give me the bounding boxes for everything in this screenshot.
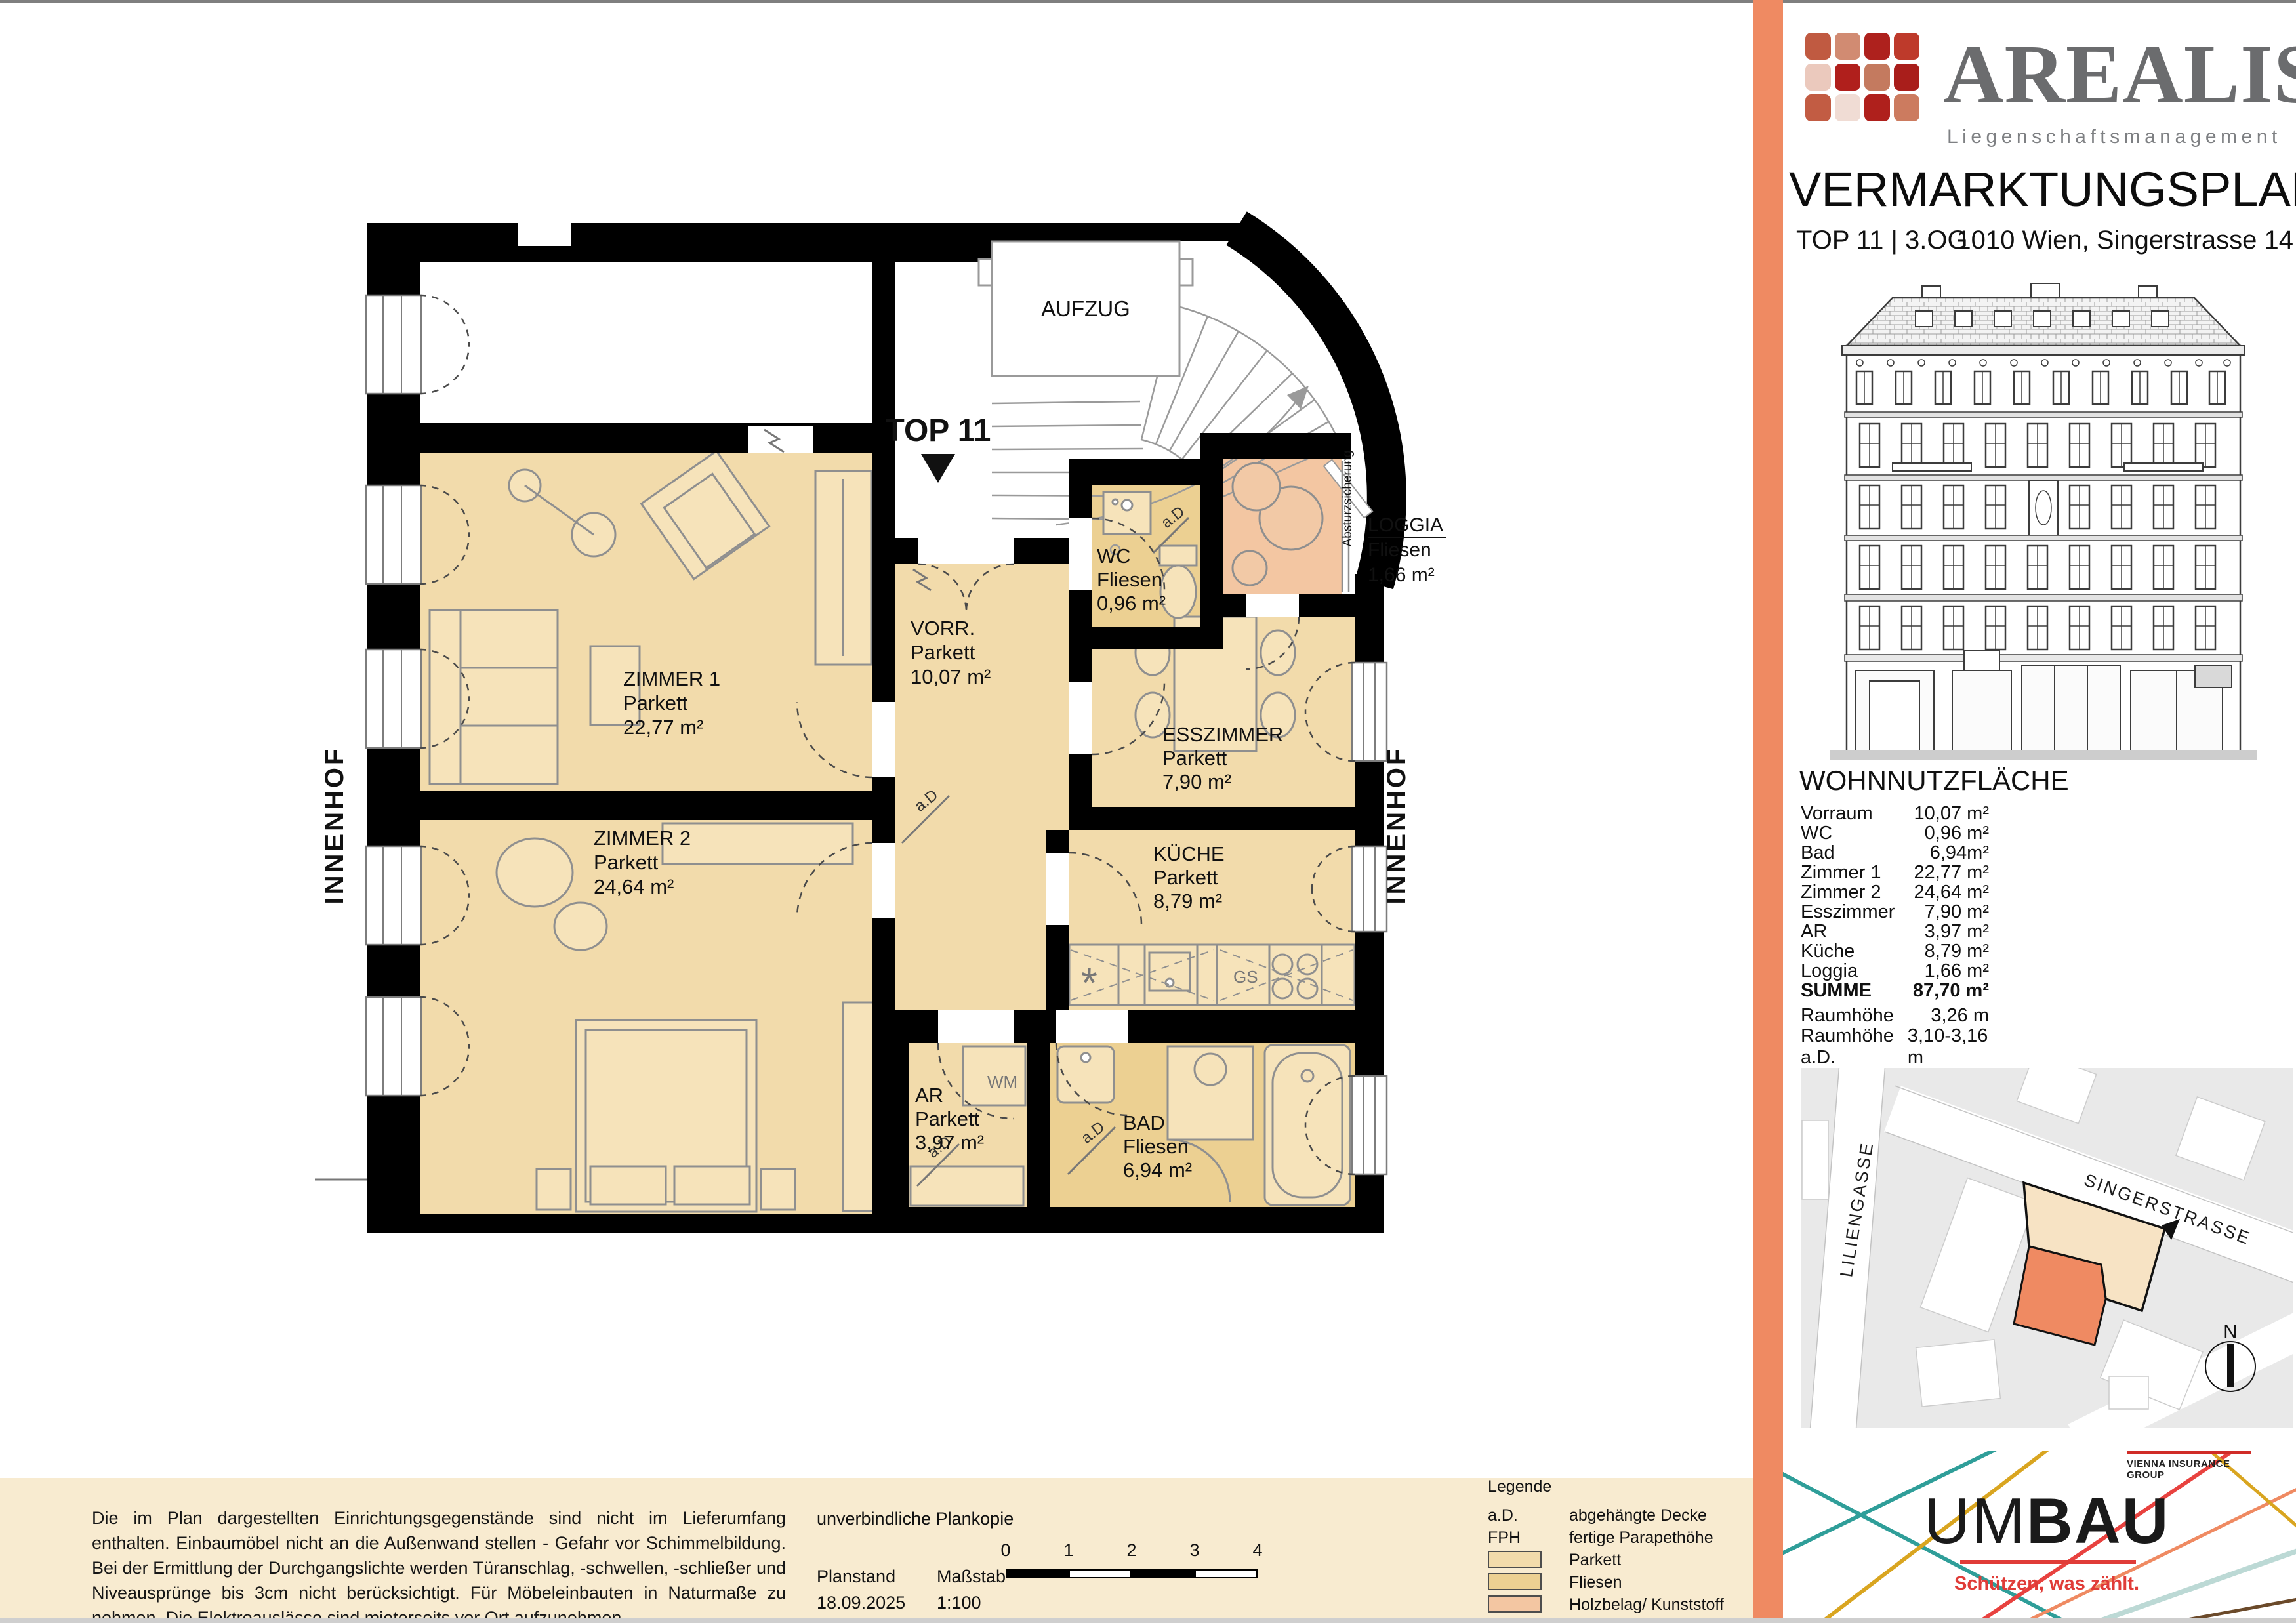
kitchen-counter	[1069, 945, 1355, 1005]
floor3-windows	[1860, 480, 2215, 535]
table-row: Loggia1,66 m²	[1801, 960, 1989, 980]
zimmer1-area: 22,77 m²	[623, 716, 703, 739]
logo-square	[1864, 33, 1890, 60]
table-row: Vorraum10,07 m²	[1801, 803, 1989, 823]
ar-area: 3,97 m²	[915, 1131, 984, 1154]
area-table-title: WOHNNUTZFLÄCHE	[1799, 765, 2069, 796]
ar-floor: Parkett	[915, 1107, 980, 1130]
toilet-tank	[1160, 546, 1197, 565]
brand-name: AREALIS	[1943, 26, 2294, 123]
plankopie-note: unverbindliche Plankopie	[817, 1509, 1014, 1529]
umbau-bau: BAU	[2026, 1485, 2169, 1557]
esszimmer-name: ESSZIMMER	[1162, 723, 1283, 746]
bad-name: BAD	[1123, 1111, 1165, 1134]
elevator: AUFZUG	[979, 241, 1193, 376]
table-row: Raumhöhe3,26 m	[1801, 1005, 1989, 1025]
top11-marker: TOP 11	[885, 413, 991, 483]
absturzsicherung-label: Absturzsicherung	[1341, 451, 1355, 547]
document-title: VERMARKTUNGSPLAN	[1789, 161, 2294, 217]
top11-label: TOP 11	[885, 413, 991, 448]
table-row: Küche8,79 m²	[1801, 941, 1989, 960]
entrance-arrow-icon	[921, 454, 955, 483]
floor1-windows	[1860, 606, 2215, 649]
loggia-name: LOGGIA	[1368, 514, 1443, 536]
scale-segment	[1006, 1569, 1069, 1578]
armchair-zimmer2	[497, 838, 573, 907]
innenhof-left-label: INNENHOF	[320, 747, 349, 905]
logo-square	[1894, 94, 1919, 121]
logo-square	[1835, 94, 1860, 121]
wc-area: 0,96 m²	[1097, 592, 1166, 615]
legend-swatch-parkett	[1488, 1551, 1542, 1568]
fridge-symbol: *	[1081, 959, 1097, 1006]
legend-title: Legende	[1488, 1477, 1551, 1496]
legend-label: Fliesen	[1569, 1573, 1622, 1592]
table-row: Raumhöhe a.D.3,10-3,16 m	[1801, 1025, 1989, 1046]
floor4-windows	[1860, 424, 2215, 471]
ground-line	[1830, 750, 2257, 760]
esszimmer-area: 7,90 m²	[1162, 770, 1231, 793]
zimmer1-floor: Parkett	[623, 691, 688, 714]
floor-plan: a.D a.D a.D a.D WM GS * AUFZUG ZIMMER 1 …	[0, 0, 1753, 1483]
vienna-insurance-group-logo: VIENNA INSURANCE GROUP	[2127, 1451, 2265, 1481]
logo-square	[1894, 33, 1919, 60]
address-label: 1010 Wien, Singerstrasse 14	[1929, 226, 2293, 255]
logo-square	[1835, 33, 1860, 60]
logo-square	[1835, 64, 1860, 91]
balcony	[2124, 463, 2203, 471]
floor2-windows	[1860, 546, 2215, 589]
scale-tick: 4	[1244, 1540, 1271, 1561]
loggia-chair	[1233, 463, 1280, 510]
sofa	[430, 610, 558, 784]
wm-label: WM	[987, 1072, 1017, 1092]
scale-tick: 3	[1181, 1540, 1208, 1561]
zimmer2-floor: Parkett	[594, 851, 659, 874]
logo-square	[1805, 94, 1831, 121]
kueche-name: KÜCHE	[1153, 842, 1225, 865]
legend-label: fertige Parapethöhe	[1569, 1529, 1713, 1548]
planstand-value: 18.09.2025	[817, 1593, 905, 1613]
logo-square	[1864, 64, 1890, 91]
planstand-label: Planstand	[817, 1567, 895, 1587]
logo-square	[1805, 33, 1831, 60]
legend-label: Parkett	[1569, 1551, 1621, 1570]
pillow	[674, 1166, 750, 1204]
vorraum-floor: Parkett	[911, 641, 975, 664]
table-row: Bad6,94m²	[1801, 842, 1989, 862]
sideboard	[663, 823, 853, 864]
brand-subtitle: Liegenschaftsmanagement	[1947, 126, 2282, 148]
room-height-table: Raumhöhe3,26 m Raumhöhe a.D.3,10-3,16 m	[1801, 1005, 1989, 1046]
legend-key: a.D.	[1488, 1506, 1518, 1525]
zimmer2-area: 24,64 m²	[594, 875, 674, 898]
scale-segment	[1069, 1569, 1132, 1578]
legend-swatch-fliesen	[1488, 1573, 1542, 1590]
legend-label: Holzbelag/ Kunststoff	[1569, 1595, 1724, 1614]
scale-segment	[1195, 1569, 1258, 1578]
massstab-label: Maßstab	[937, 1567, 1006, 1587]
wc-name: WC	[1097, 544, 1131, 567]
legend-key: FPH	[1488, 1529, 1521, 1548]
bad-area: 6,94 m²	[1123, 1159, 1192, 1181]
wc-sink	[1103, 492, 1151, 534]
building-elevation-drawing	[1830, 283, 2257, 770]
scale-tick: 2	[1118, 1540, 1145, 1561]
vorraum-area: 10,07 m²	[911, 665, 991, 688]
bath-cabinet	[1168, 1046, 1253, 1140]
compass-needle	[2227, 1344, 2234, 1387]
umbau-tagline: Schützen, was zählt.	[1916, 1573, 2178, 1595]
umbau-logo: UMBAU	[1916, 1484, 2178, 1558]
innenhof-right-label: INNENHOF	[1382, 747, 1411, 905]
vermarktungsplan-page: a.D a.D a.D a.D WM GS * AUFZUG ZIMMER 1 …	[0, 0, 2296, 1623]
vorraum-name: VORR.	[911, 617, 975, 640]
pillow	[590, 1166, 666, 1204]
logo-square	[1864, 94, 1890, 121]
nightstand	[761, 1169, 795, 1210]
scale-tick: 1	[1056, 1540, 1082, 1561]
table-row: Esszimmer7,90 m²	[1801, 901, 1989, 921]
loggia-floor: Fliesen	[1368, 539, 1431, 561]
logo-square	[1894, 64, 1919, 91]
compass-north-label: N	[2223, 1321, 2238, 1343]
bad-floor: Fliesen	[1123, 1135, 1189, 1158]
page-bottom-edge	[0, 1618, 2296, 1623]
aufzug-label: AUFZUG	[1041, 297, 1130, 321]
gs-label: GS	[1233, 967, 1258, 987]
esszimmer-floor: Parkett	[1162, 747, 1227, 770]
balcony	[1893, 463, 1971, 471]
chair	[1261, 630, 1295, 675]
kueche-area: 8,79 m²	[1153, 890, 1222, 913]
kueche-floor: Parkett	[1153, 866, 1218, 889]
logo-square	[1805, 64, 1831, 91]
disclaimer-text: Die im Plan dargestellten Einrichtungsge…	[92, 1506, 786, 1623]
table-sum-row: SUMME87,70 m²	[1801, 980, 1989, 1000]
legend-label: abgehängte Decke	[1569, 1506, 1707, 1525]
umbau-um: UM	[1924, 1485, 2026, 1557]
wc-floor: Fliesen	[1097, 568, 1162, 591]
table-row: AR3,97 m²	[1801, 921, 1989, 941]
zimmer2-name: ZIMMER 2	[594, 827, 691, 850]
scale-segment	[1132, 1569, 1195, 1578]
scale-tick: 0	[993, 1540, 1019, 1561]
zimmer1-name: ZIMMER 1	[623, 667, 720, 690]
site-map: SINGERSTRASSE LILIENGASSE N	[1801, 1068, 2293, 1428]
nightstand	[537, 1169, 571, 1210]
ar-shelf	[911, 1166, 1023, 1206]
table-row: WC0,96 m²	[1801, 823, 1989, 842]
table-row: Zimmer 122,77 m²	[1801, 862, 1989, 882]
legend-swatch-holzbelag	[1488, 1595, 1542, 1613]
massstab-value: 1:100	[937, 1593, 981, 1613]
loggia-chair	[1233, 551, 1267, 585]
loggia-area: 1,66 m²	[1368, 564, 1435, 586]
area-table: Vorraum10,07 m² WC0,96 m² Bad6,94m² Zimm…	[1801, 803, 1989, 1000]
table-row: Zimmer 224,64 m²	[1801, 882, 1989, 901]
umbau-underline	[1960, 1560, 2136, 1564]
divider-band	[1753, 0, 1783, 1623]
ar-name: AR	[915, 1084, 943, 1107]
